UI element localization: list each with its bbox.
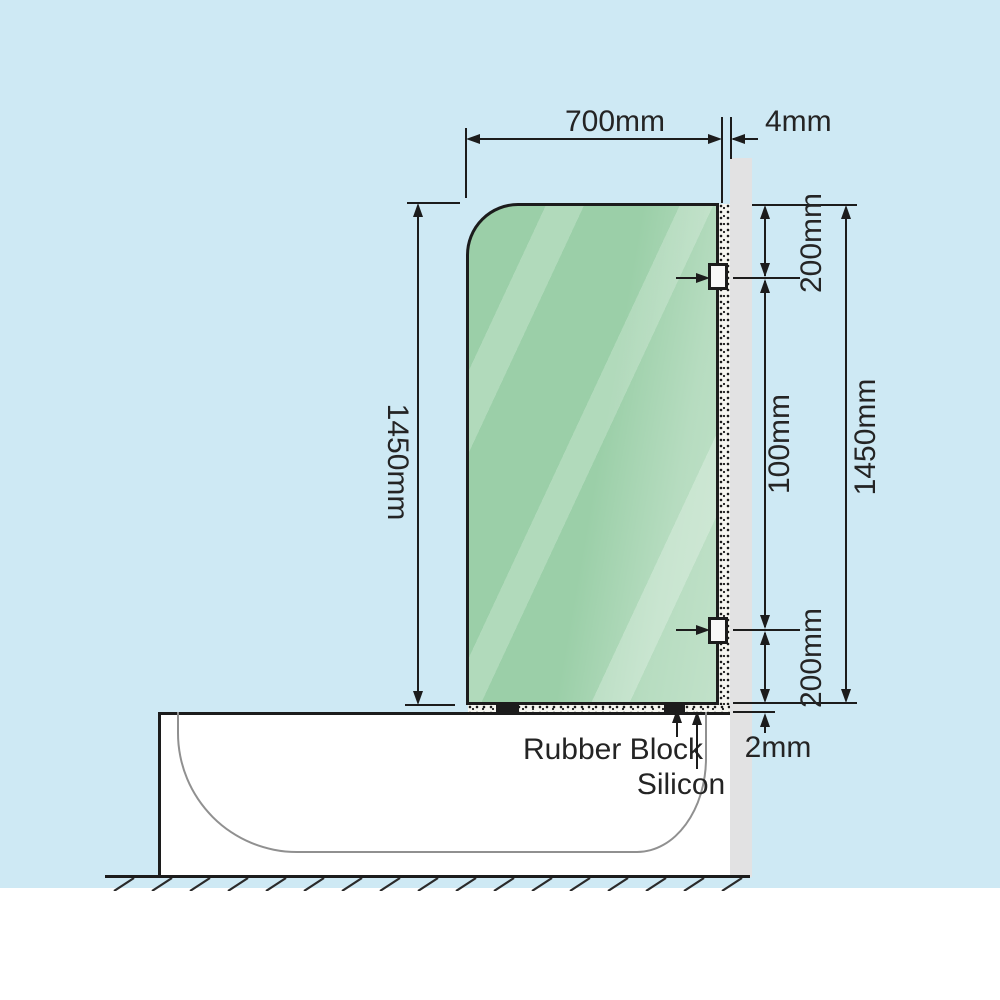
dim-4mm-arrow (731, 134, 745, 144)
silicon-arrow (692, 711, 702, 725)
dim-label-200mm-bottom: 200mm (795, 608, 829, 708)
dim-1450-left-arrow-top (413, 203, 423, 217)
dim-label-2mm: 2mm (745, 731, 812, 764)
dim-1450-right-arrow-up (841, 205, 851, 219)
dim-label-200mm-top: 200mm (795, 193, 829, 293)
silicon-label: Silicon (637, 768, 725, 801)
dim-line-1450mm-left (417, 206, 419, 700)
ext-line-glass-right (721, 117, 723, 203)
bracket-top-arrow (696, 273, 710, 283)
dim-label-700mm: 700mm (565, 105, 665, 138)
wall (730, 158, 752, 877)
silicon-leader (696, 724, 698, 769)
dim-700mm-arrow-left (466, 134, 480, 144)
rubber-block-arrow (672, 709, 682, 723)
dim-label-1450mm-left: 1450mm (380, 404, 414, 521)
dim-line-1450mm-right (845, 208, 847, 698)
ground-hatching (112, 878, 748, 891)
dim-2mm-arrow (760, 713, 770, 727)
dim-700mm-arrow-right (708, 134, 722, 144)
dim-label-100mm: 100mm (763, 394, 797, 494)
dim-1450-right-arrow-down (841, 689, 851, 703)
dim-100-arrow-down (760, 615, 770, 629)
diagram-canvas: 700mm 4mm 1450mm 200mm 100mm 200mm 1450m… (0, 0, 1000, 1000)
bracket-bottom-arrow (696, 625, 710, 635)
dim-label-1450mm-right: 1450mm (849, 379, 883, 496)
dim-line-700mm (470, 138, 718, 140)
dim-1450-left-arrow-bottom (413, 691, 423, 705)
dim-200-bottom-arrow-up (760, 631, 770, 645)
bracket-top (708, 263, 728, 290)
bracket-bottom (708, 617, 728, 644)
dim-100-arrow-up (760, 279, 770, 293)
rubber-block-label: Rubber Block (523, 733, 703, 766)
dim-200-top-arrow-up (760, 205, 770, 219)
dim-label-4mm: 4mm (765, 105, 832, 138)
dim-200-top-arrow-down (760, 263, 770, 277)
rubber-block-left (496, 705, 519, 712)
dim-200-bottom-arrow-down (760, 689, 770, 703)
